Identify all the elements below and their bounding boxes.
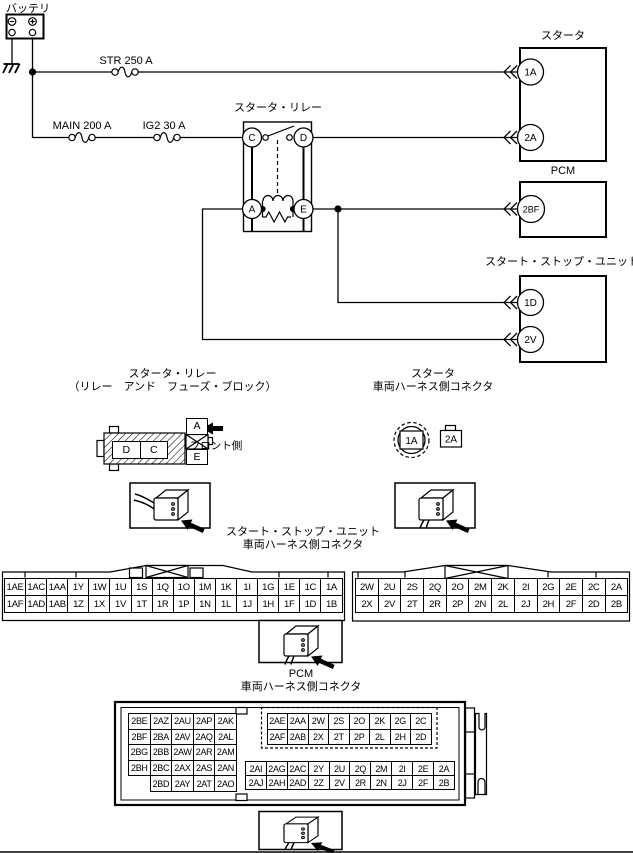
connector-view-icon-ssu xyxy=(259,621,342,673)
pcm-connector-header-line1: PCM xyxy=(201,668,401,681)
fuse-str-label: STR 250 A xyxy=(91,55,161,68)
pin-1C: 1C xyxy=(299,578,321,596)
connector-chevrons xyxy=(504,66,517,347)
relay-terminal-d-label: D xyxy=(300,133,307,144)
pcm-connector-top-right-pin-grid: 2AE2AA2W2S2O2K2G2C2AF2AB2X2T2P2L2H2D xyxy=(267,713,432,745)
pin-2I: 2I xyxy=(391,761,413,776)
pin-2V: 2V xyxy=(378,595,402,613)
pcm-connector-header-line2: 車両ハーネス側コネクタ xyxy=(201,681,401,694)
terminal-1a-label: 1A xyxy=(524,68,537,79)
battery-symbol xyxy=(7,15,44,39)
terminal-2a-label: 2A xyxy=(524,133,537,144)
pin-2AB: 2AB xyxy=(287,729,309,746)
pin-2AF: 2AF xyxy=(267,729,289,746)
pin-2K: 2K xyxy=(491,578,515,596)
pin-2E: 2E xyxy=(412,761,434,776)
pin-2B: 2B xyxy=(605,595,629,613)
pin-1Q: 1Q xyxy=(152,578,174,596)
pin-1AF: 1AF xyxy=(4,595,26,613)
pin-2AP: 2AP xyxy=(193,713,216,730)
pin-2P: 2P xyxy=(446,595,470,613)
pin-row: 1AF1AD1AB1Z1X1V1T1R1P1N1L1J1H1F1D1B xyxy=(4,596,343,613)
connector-view-icon-relay xyxy=(130,483,210,536)
pin-2R: 2R xyxy=(349,775,371,790)
pin-row: 2AF2AB2X2T2P2L2H2D xyxy=(267,730,432,746)
pin-2AA: 2AA xyxy=(287,713,309,730)
pin-2AO: 2AO xyxy=(214,775,237,792)
pin-2AS: 2AS xyxy=(193,760,216,777)
pin-2Q: 2Q xyxy=(349,761,371,776)
terminal-2bf-label: 2BF xyxy=(523,205,540,215)
terminal-1d-label: 1D xyxy=(524,298,537,309)
pin-row: 2W2U2S2Q2O2M2K2I2G2E2C2A xyxy=(355,578,628,596)
pin-2D: 2D xyxy=(582,595,606,613)
pin-2K: 2K xyxy=(369,713,391,730)
pin-2AJ: 2AJ xyxy=(245,775,267,790)
ssu-connector-header-line2: 車両ハーネス側コネクタ xyxy=(203,539,403,552)
pin-2H: 2H xyxy=(537,595,561,613)
pin-2AG: 2AG xyxy=(266,761,288,776)
pin-1AC: 1AC xyxy=(25,578,47,596)
fuse-str-icon xyxy=(112,67,138,77)
ssu-connector-header-line1: スタート・ストップ・ユニット xyxy=(203,526,403,539)
starter-connector-header-line1: スタータ xyxy=(353,368,513,381)
pin-2BH: 2BH xyxy=(128,760,151,777)
pin-2X: 2X xyxy=(355,595,379,613)
pin-row: 2BG2BB2AW2AR2AM xyxy=(128,745,237,761)
junction-dot xyxy=(30,69,36,75)
pin-2Q: 2Q xyxy=(423,578,447,596)
pin-1Y: 1Y xyxy=(67,578,89,596)
pin-1AE: 1AE xyxy=(4,578,26,596)
pin-2P: 2P xyxy=(349,729,371,746)
pin-2AY: 2AY xyxy=(171,775,194,792)
pin-2A: 2A xyxy=(433,761,455,776)
pin-2J: 2J xyxy=(391,775,413,790)
pin-row: 2BD2AY2AT2AO xyxy=(128,776,237,792)
battery-label: バッテリ xyxy=(6,3,50,16)
fuse-main-icon xyxy=(69,133,95,143)
relay-title: スタータ・リレー xyxy=(217,102,339,115)
fuse-ig2-icon xyxy=(154,133,180,143)
terminal-2v-label: 2V xyxy=(524,335,537,346)
ground-icon xyxy=(3,64,20,73)
starter-connector-1a-label: 1A xyxy=(405,436,418,447)
pin-1Z: 1Z xyxy=(67,595,89,613)
pin-2L: 2L xyxy=(491,595,515,613)
pin-2AM: 2AM xyxy=(214,744,237,761)
ssu-box-title: スタート・ストップ・ユニット xyxy=(462,256,633,269)
pin-2H: 2H xyxy=(390,729,412,746)
starter-connector-header-line2: 車両ハーネス側コネクタ xyxy=(353,381,513,394)
pin-2M: 2M xyxy=(370,761,392,776)
pin-2AL: 2AL xyxy=(214,729,237,746)
pin-1M: 1M xyxy=(194,578,216,596)
pin-2AV: 2AV xyxy=(171,729,194,746)
pin-2I: 2I xyxy=(514,578,538,596)
pin-2L: 2L xyxy=(369,729,391,746)
pin-1F: 1F xyxy=(278,595,300,613)
pin-2S: 2S xyxy=(328,713,350,730)
pin-2C: 2C xyxy=(410,713,432,730)
pin-1N: 1N xyxy=(194,595,216,613)
ssu-connector-header: スタート・ストップ・ユニット 車両ハーネス側コネクタ xyxy=(203,526,403,552)
pin-2X: 2X xyxy=(308,729,330,746)
pcm-connector-header: PCM 車両ハーネス側コネクタ xyxy=(201,668,401,694)
pin-2D: 2D xyxy=(410,729,432,746)
pin-2T: 2T xyxy=(400,595,424,613)
relay-connector-cell-a: A xyxy=(186,418,208,435)
pin-row: 2AE2AA2W2S2O2K2G2C xyxy=(267,713,432,730)
pin-2AK: 2AK xyxy=(214,713,237,730)
pin-2T: 2T xyxy=(328,729,350,746)
pin-1X: 1X xyxy=(88,595,110,613)
pin-2BD: 2BD xyxy=(150,775,173,792)
pin-empty xyxy=(128,775,151,792)
ssu-housing-2-keyway-x xyxy=(445,566,508,579)
pin-2N: 2N xyxy=(468,595,492,613)
pin-2E: 2E xyxy=(559,578,583,596)
pin-2J: 2J xyxy=(514,595,538,613)
pin-2BG: 2BG xyxy=(128,744,151,761)
pin-1L: 1L xyxy=(215,595,237,613)
fuse-main-label: MAIN 200 A xyxy=(46,120,118,133)
relay-connector-cell-c: C xyxy=(140,441,169,459)
pin-2AH: 2AH xyxy=(266,775,288,790)
pin-2AN: 2AN xyxy=(214,760,237,777)
pin-1O: 1O xyxy=(173,578,195,596)
pin-1I: 1I xyxy=(236,578,258,596)
pin-2B: 2B xyxy=(433,775,455,790)
pin-1G: 1G xyxy=(257,578,279,596)
pin-row: 2AI2AG2AC2Y2U2Q2M2I2E2A xyxy=(245,761,455,776)
pin-2V: 2V xyxy=(329,775,351,790)
pin-2O: 2O xyxy=(446,578,470,596)
relay-connector-header: スタータ・リレー （リレー アンド フューズ・ブロック） xyxy=(40,368,305,394)
connector-view-icon-starter xyxy=(395,483,475,536)
pin-1W: 1W xyxy=(88,578,110,596)
pin-1J: 1J xyxy=(236,595,258,613)
pin-1S: 1S xyxy=(131,578,153,596)
pin-2Z: 2Z xyxy=(308,775,330,790)
pin-1P: 1P xyxy=(173,595,195,613)
pin-2O: 2O xyxy=(349,713,371,730)
pin-2U: 2U xyxy=(378,578,402,596)
pin-2F: 2F xyxy=(412,775,434,790)
pin-2A: 2A xyxy=(605,578,629,596)
pin-row: 2BE2AZ2AU2AP2AK xyxy=(128,713,237,730)
starter-connector-2a-label: 2A xyxy=(445,435,458,446)
ssu-connector-pin-grid-2: 2W2U2S2Q2O2M2K2I2G2E2C2A2X2V2T2R2P2N2L2J… xyxy=(355,578,628,613)
starter-box-title: スタータ xyxy=(513,30,613,43)
pin-2F: 2F xyxy=(559,595,583,613)
pin-2W: 2W xyxy=(308,713,330,730)
pin-row: 2BH2BC2AX2AS2AN xyxy=(128,761,237,777)
pin-1AA: 1AA xyxy=(46,578,68,596)
pin-2U: 2U xyxy=(329,761,351,776)
pin-1E: 1E xyxy=(278,578,300,596)
pin-1AD: 1AD xyxy=(25,595,47,613)
relay-connector-cell-e: E xyxy=(186,449,208,465)
starter-relay-symbol: C D A E xyxy=(243,122,314,232)
pin-2BA: 2BA xyxy=(150,729,173,746)
junction-dot xyxy=(335,206,341,212)
pin-2AZ: 2AZ xyxy=(150,713,173,730)
starter-connector-drawing: 1A 2A xyxy=(394,423,462,458)
pin-2BF: 2BF xyxy=(128,729,151,746)
pin-2C: 2C xyxy=(582,578,606,596)
pin-2G: 2G xyxy=(537,578,561,596)
ssu-connector-pin-grid-1: 1AE1AC1AA1Y1W1U1S1Q1O1M1K1I1G1E1C1A1AF1A… xyxy=(4,578,343,613)
ssu-housing-1-keyway-x xyxy=(146,566,188,578)
pin-row: 2BF2BA2AV2AQ2AL xyxy=(128,730,237,746)
pin-1U: 1U xyxy=(109,578,131,596)
pin-1H: 1H xyxy=(257,595,279,613)
pin-2Y: 2Y xyxy=(308,761,330,776)
pin-2R: 2R xyxy=(423,595,447,613)
relay-terminal-a-label: A xyxy=(249,205,256,216)
pin-2AQ: 2AQ xyxy=(193,729,216,746)
relay-terminal-e-label: E xyxy=(300,205,307,216)
pcm-box-title: PCM xyxy=(513,165,613,178)
pin-2BB: 2BB xyxy=(150,744,173,761)
pin-1AB: 1AB xyxy=(46,595,68,613)
pin-1V: 1V xyxy=(109,595,131,613)
pin-2AC: 2AC xyxy=(287,761,309,776)
pin-row: 2AJ2AH2AD2Z2V2R2N2J2F2B xyxy=(245,776,455,790)
pin-2AD: 2AD xyxy=(287,775,309,790)
pin-1D: 1D xyxy=(299,595,321,613)
relay-connector-header-line2: （リレー アンド フューズ・ブロック） xyxy=(40,381,305,394)
pin-2W: 2W xyxy=(355,578,379,596)
fuse-ig2-label: IG2 30 A xyxy=(128,120,200,133)
pin-2S: 2S xyxy=(400,578,424,596)
pin-2AR: 2AR xyxy=(193,744,216,761)
pin-row: 1AE1AC1AA1Y1W1U1S1Q1O1M1K1I1G1E1C1A xyxy=(4,578,343,596)
pcm-connector-bottom-right-pin-grid: 2AI2AG2AC2Y2U2Q2M2I2E2A2AJ2AH2AD2Z2V2R2N… xyxy=(245,761,455,790)
relay-connector-cell-d: D xyxy=(112,441,141,459)
pin-2AE: 2AE xyxy=(267,713,289,730)
pin-1T: 1T xyxy=(131,595,153,613)
wiring-diagram-page: C D A E xyxy=(0,0,633,853)
relay-connector-header-line1: スタータ・リレー xyxy=(40,368,305,381)
pin-row: 2X2V2T2R2P2N2L2J2H2F2D2B xyxy=(355,596,628,613)
pin-2AW: 2AW xyxy=(171,744,194,761)
pin-2AX: 2AX xyxy=(171,760,194,777)
connector-view-icon-pcm xyxy=(259,812,342,853)
pin-2BC: 2BC xyxy=(150,760,173,777)
pin-2AT: 2AT xyxy=(193,775,216,792)
pin-2M: 2M xyxy=(468,578,492,596)
starter-connector-header: スタータ 車両ハーネス側コネクタ xyxy=(353,368,513,394)
pin-1A: 1A xyxy=(320,578,342,596)
pcm-connector-left-pin-grid: 2BE2AZ2AU2AP2AK2BF2BA2AV2AQ2AL2BG2BB2AW2… xyxy=(128,713,237,792)
pin-1K: 1K xyxy=(215,578,237,596)
pin-2G: 2G xyxy=(390,713,412,730)
pin-2N: 2N xyxy=(370,775,392,790)
pin-2BE: 2BE xyxy=(128,713,151,730)
pin-1B: 1B xyxy=(320,595,342,613)
pin-2AI: 2AI xyxy=(245,761,267,776)
relay-terminal-c-label: C xyxy=(248,133,255,144)
pin-2AU: 2AU xyxy=(171,713,194,730)
pin-1R: 1R xyxy=(152,595,174,613)
